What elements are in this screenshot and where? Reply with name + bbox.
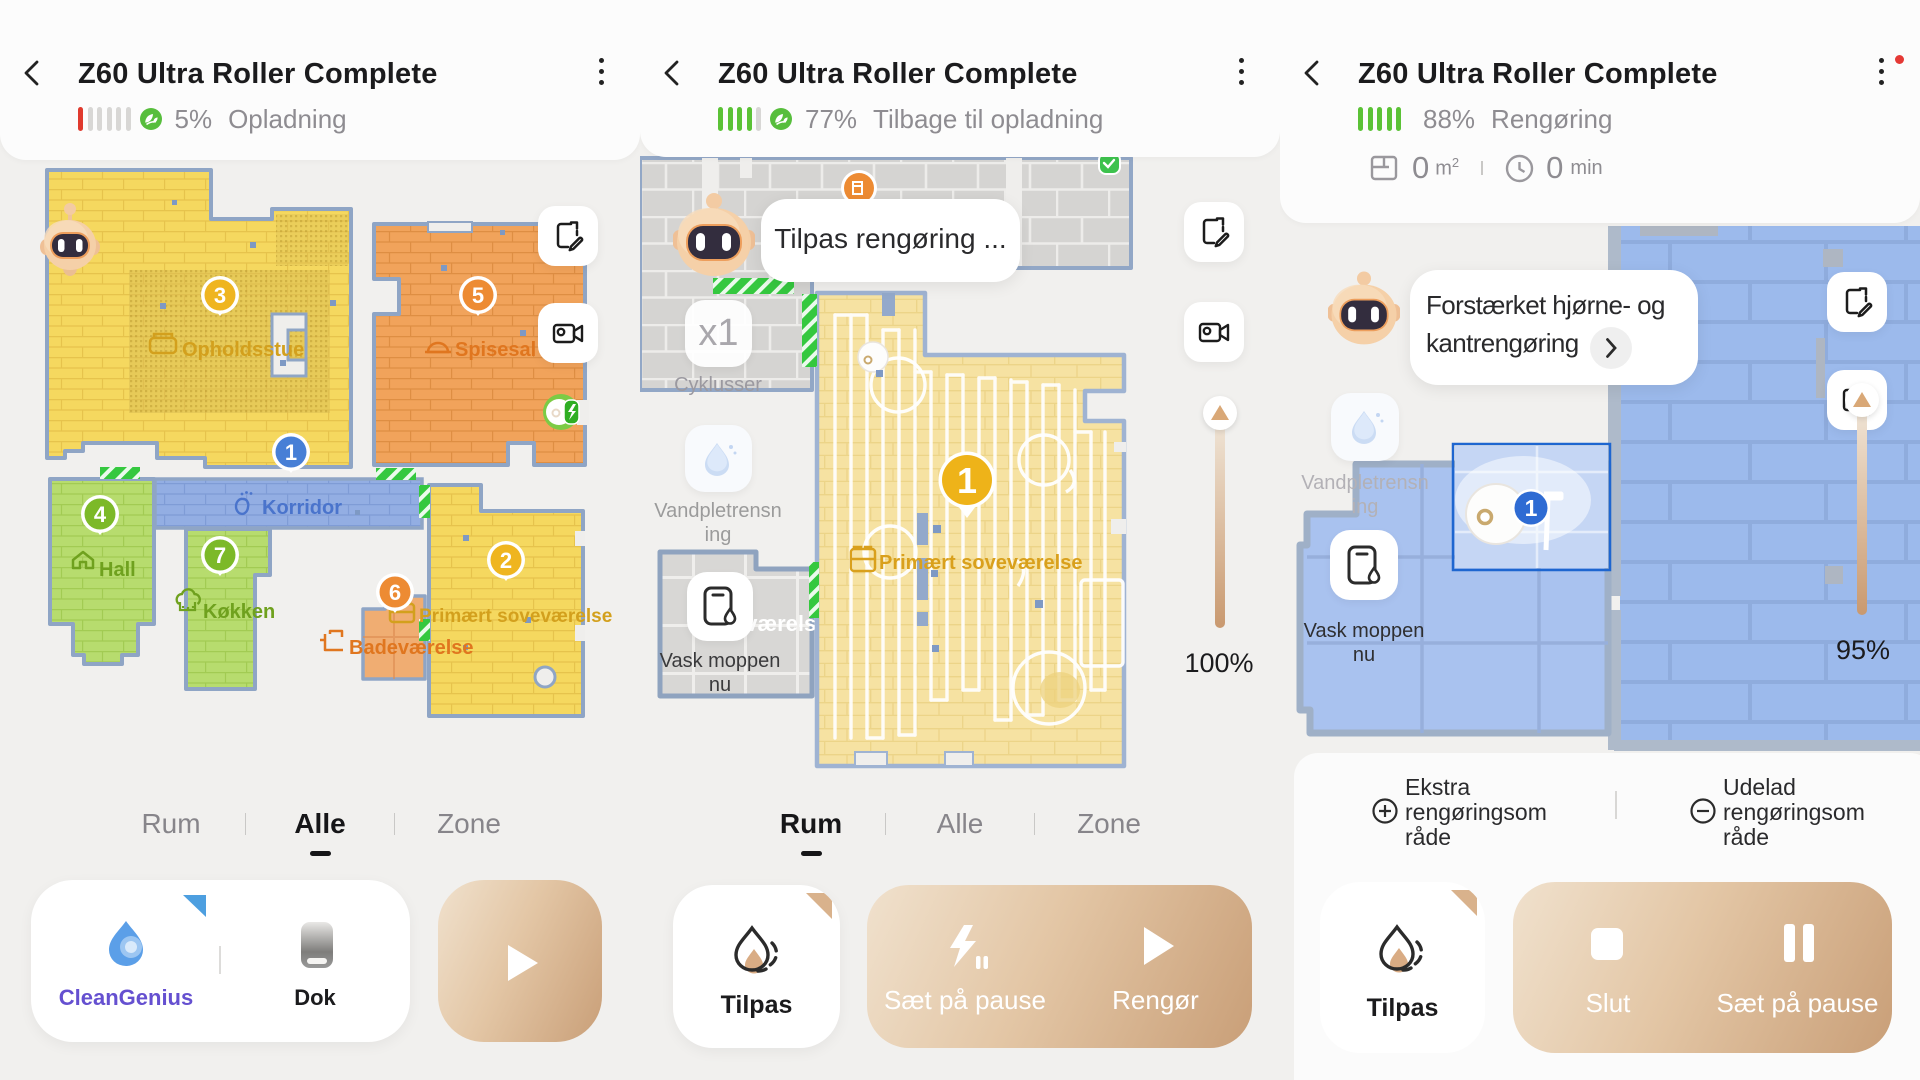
svg-text:3: 3 [214,283,226,308]
svg-text:Primært soveværelse: Primært soveværelse [419,606,612,627]
svg-text:Spisesal: Spisesal [455,339,536,361]
svg-text:2: 2 [500,548,512,573]
svg-text:Primært soveværelse: Primært soveværelse [879,552,1082,574]
svg-text:1: 1 [285,440,297,465]
svg-text:7: 7 [214,543,226,568]
svg-text:1: 1 [957,460,977,501]
svg-text:Køkken: Køkken [203,601,275,623]
svg-text:Hall: Hall [99,559,136,581]
svg-text:6: 6 [389,580,401,605]
svg-text:5: 5 [472,283,484,308]
svg-text:1: 1 [1525,495,1538,521]
svg-text:Badeværelse: Badeværelse [349,637,474,659]
svg-text:Korridor: Korridor [262,497,342,519]
svg-text:4: 4 [94,502,107,527]
svg-text:Opholdsstue: Opholdsstue [182,339,304,361]
